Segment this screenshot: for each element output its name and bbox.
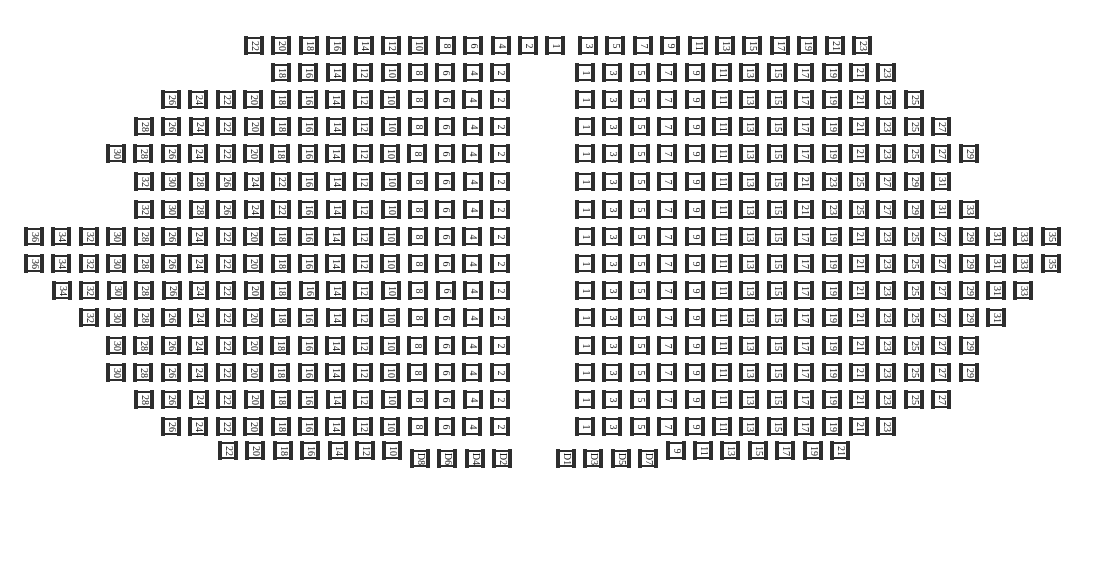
seat[interactable]: 30 — [106, 254, 126, 273]
seat[interactable]: 31 — [986, 227, 1006, 246]
seat[interactable]: 2 — [490, 336, 510, 355]
seat[interactable]: 8 — [436, 36, 456, 55]
seat[interactable]: 27 — [931, 363, 951, 382]
seat[interactable]: 2 — [490, 417, 510, 436]
seat[interactable]: 1 — [575, 336, 595, 355]
seat[interactable]: 10 — [380, 417, 400, 436]
seat[interactable]: 16 — [298, 144, 318, 163]
seat[interactable]: 16 — [298, 336, 318, 355]
seat[interactable]: 11 — [712, 336, 732, 355]
seat[interactable]: 20 — [243, 308, 263, 327]
seat[interactable]: 4 — [463, 281, 483, 300]
seat[interactable]: 11 — [712, 254, 732, 273]
seat[interactable]: 29 — [959, 308, 979, 327]
seat[interactable]: 23 — [876, 90, 896, 109]
seat[interactable]: 26 — [162, 281, 182, 300]
seat[interactable]: 14 — [354, 36, 374, 55]
seat[interactable]: 1 — [575, 63, 595, 82]
seat[interactable]: 28 — [133, 363, 153, 382]
seat[interactable]: 31 — [931, 172, 951, 191]
seat[interactable]: 25 — [849, 172, 869, 191]
seat[interactable]: 13 — [715, 36, 735, 55]
seat[interactable]: 25 — [904, 227, 924, 246]
seat[interactable]: 13 — [739, 117, 759, 136]
seat[interactable]: 24 — [189, 281, 209, 300]
seat[interactable]: 24 — [189, 390, 209, 409]
seat[interactable]: 21 — [794, 200, 814, 219]
seat[interactable]: 11 — [712, 200, 732, 219]
seat[interactable]: 5 — [630, 417, 650, 436]
seat[interactable]: 6 — [435, 336, 455, 355]
seat[interactable]: 25 — [904, 281, 924, 300]
seat[interactable]: 8 — [408, 90, 428, 109]
seat[interactable]: 3 — [602, 308, 622, 327]
seat[interactable]: 8 — [407, 336, 427, 355]
seat[interactable]: 7 — [657, 308, 677, 327]
seat[interactable]: 29 — [904, 172, 924, 191]
seat[interactable]: 23 — [876, 117, 896, 136]
seat[interactable]: 1 — [575, 308, 595, 327]
seat[interactable]: 35 — [1041, 227, 1061, 246]
seat[interactable]: 8 — [408, 172, 428, 191]
seat[interactable]: 27 — [931, 336, 951, 355]
seat[interactable]: 26 — [161, 417, 181, 436]
seat[interactable]: 27 — [931, 227, 951, 246]
seat[interactable]: 6 — [435, 363, 455, 382]
seat[interactable]: 16 — [298, 117, 318, 136]
seat[interactable]: 4 — [463, 63, 483, 82]
seat[interactable]: 1 — [575, 417, 595, 436]
wheelchair-seat[interactable]: D2 — [492, 449, 512, 468]
seat[interactable]: 2 — [490, 308, 510, 327]
seat[interactable]: 30 — [161, 200, 181, 219]
seat[interactable]: 17 — [794, 336, 814, 355]
seat[interactable]: 1 — [575, 200, 595, 219]
seat[interactable]: 6 — [435, 417, 455, 436]
seat[interactable]: 19 — [797, 36, 817, 55]
seat[interactable]: 21 — [849, 227, 869, 246]
seat[interactable]: 20 — [244, 390, 264, 409]
seat[interactable]: 22 — [244, 36, 264, 55]
seat[interactable]: 24 — [188, 144, 208, 163]
seat[interactable]: 18 — [273, 441, 293, 460]
seat[interactable]: 25 — [904, 308, 924, 327]
seat[interactable]: 31 — [986, 281, 1006, 300]
seat[interactable]: 15 — [767, 254, 787, 273]
seat[interactable]: 6 — [435, 308, 455, 327]
seat[interactable]: 24 — [188, 417, 208, 436]
seat[interactable]: 28 — [134, 227, 154, 246]
seat[interactable]: 29 — [904, 200, 924, 219]
seat[interactable]: 4 — [462, 254, 482, 273]
seat[interactable]: 26 — [161, 254, 181, 273]
seat[interactable]: 5 — [630, 336, 650, 355]
seat[interactable]: 19 — [822, 308, 842, 327]
seat[interactable]: 19 — [822, 90, 842, 109]
seat[interactable]: 25 — [904, 363, 924, 382]
seat[interactable]: 28 — [134, 308, 154, 327]
seat[interactable]: 10 — [381, 172, 401, 191]
seat[interactable]: 7 — [657, 227, 677, 246]
seat[interactable]: 18 — [271, 390, 291, 409]
seat[interactable]: 14 — [325, 417, 345, 436]
seat[interactable]: 21 — [849, 363, 869, 382]
seat[interactable]: 10 — [380, 336, 400, 355]
seat[interactable]: 9 — [685, 117, 705, 136]
seat[interactable]: 17 — [794, 227, 814, 246]
seat[interactable]: 3 — [602, 200, 622, 219]
seat[interactable]: 12 — [353, 117, 373, 136]
seat[interactable]: 9 — [685, 144, 705, 163]
seat[interactable]: 5 — [630, 390, 650, 409]
seat[interactable]: 15 — [767, 117, 787, 136]
seat[interactable]: 29 — [959, 281, 979, 300]
seat[interactable]: 9 — [685, 363, 705, 382]
seat[interactable]: 31 — [986, 308, 1006, 327]
seat[interactable]: 4 — [463, 172, 483, 191]
seat[interactable]: 5 — [630, 363, 650, 382]
seat[interactable]: 1 — [575, 144, 595, 163]
seat[interactable]: 26 — [161, 363, 181, 382]
seat[interactable]: 19 — [822, 417, 842, 436]
seat[interactable]: 30 — [106, 363, 126, 382]
seat[interactable]: 3 — [602, 227, 622, 246]
seat[interactable]: 22 — [216, 117, 236, 136]
seat[interactable]: 21 — [849, 144, 869, 163]
seat[interactable]: 11 — [712, 90, 732, 109]
seat[interactable]: 12 — [353, 144, 373, 163]
seat[interactable]: 15 — [767, 336, 787, 355]
seat[interactable]: 20 — [244, 117, 264, 136]
seat[interactable]: 22 — [271, 172, 291, 191]
seat[interactable]: 13 — [739, 417, 759, 436]
seat[interactable]: 3 — [602, 254, 622, 273]
seat[interactable]: 28 — [189, 200, 209, 219]
seat[interactable]: 23 — [822, 200, 842, 219]
seat[interactable]: 16 — [298, 172, 318, 191]
seat[interactable]: 20 — [243, 227, 263, 246]
seat[interactable]: 1 — [575, 90, 595, 109]
seat[interactable]: 16 — [299, 281, 319, 300]
seat[interactable]: 14 — [325, 336, 345, 355]
seat[interactable]: 17 — [794, 281, 814, 300]
seat[interactable]: 21 — [849, 308, 869, 327]
seat[interactable]: 7 — [657, 90, 677, 109]
seat[interactable]: 22 — [216, 281, 236, 300]
seat[interactable]: 5 — [630, 144, 650, 163]
seat[interactable]: 19 — [822, 281, 842, 300]
seat[interactable]: 19 — [822, 336, 842, 355]
seat[interactable]: 21 — [849, 281, 869, 300]
seat[interactable]: 9 — [685, 90, 705, 109]
seat[interactable]: 10 — [380, 363, 400, 382]
seat[interactable]: 11 — [712, 363, 732, 382]
seat[interactable]: 19 — [822, 227, 842, 246]
seat[interactable]: 28 — [133, 336, 153, 355]
seat[interactable]: 23 — [822, 172, 842, 191]
seat[interactable]: 14 — [326, 172, 346, 191]
seat[interactable]: 26 — [161, 390, 181, 409]
seat[interactable]: 10 — [381, 63, 401, 82]
seat[interactable]: 4 — [462, 90, 482, 109]
seat[interactable]: 5 — [630, 63, 650, 82]
seat[interactable]: 22 — [216, 336, 236, 355]
seat[interactable]: 13 — [739, 281, 759, 300]
seat[interactable]: 12 — [353, 308, 373, 327]
seat[interactable]: 16 — [298, 363, 318, 382]
seat[interactable]: 26 — [161, 227, 181, 246]
seat[interactable]: 3 — [602, 172, 622, 191]
seat[interactable]: 23 — [876, 363, 896, 382]
seat[interactable]: 12 — [353, 227, 373, 246]
seat[interactable]: 18 — [271, 227, 291, 246]
seat[interactable]: 5 — [630, 308, 650, 327]
seat[interactable]: 32 — [79, 227, 99, 246]
seat[interactable]: 29 — [959, 363, 979, 382]
seat[interactable]: 24 — [189, 308, 209, 327]
seat[interactable]: 13 — [739, 336, 759, 355]
seat[interactable]: 9 — [685, 336, 705, 355]
seat[interactable]: 31 — [931, 200, 951, 219]
seat[interactable]: 23 — [876, 390, 896, 409]
seat[interactable]: 22 — [216, 90, 236, 109]
seat[interactable]: 9 — [685, 417, 705, 436]
seat[interactable]: 15 — [767, 390, 787, 409]
seat[interactable]: 22 — [271, 200, 291, 219]
seat[interactable]: 9 — [685, 390, 705, 409]
seat[interactable]: 4 — [462, 144, 482, 163]
seat[interactable]: 6 — [435, 227, 455, 246]
seat[interactable]: 6 — [435, 63, 455, 82]
seat[interactable]: 20 — [243, 90, 263, 109]
seat[interactable]: 4 — [463, 200, 483, 219]
seat[interactable]: 12 — [353, 172, 373, 191]
seat[interactable]: 1 — [575, 254, 595, 273]
seat[interactable]: 10 — [380, 227, 400, 246]
seat[interactable]: 32 — [134, 172, 154, 191]
seat[interactable]: 26 — [161, 336, 181, 355]
seat[interactable]: 6 — [435, 200, 455, 219]
seat[interactable]: 11 — [712, 117, 732, 136]
wheelchair-seat[interactable]: D8 — [410, 449, 430, 468]
seat[interactable]: 25 — [904, 117, 924, 136]
seat[interactable]: 27 — [931, 281, 951, 300]
seat[interactable]: 13 — [739, 200, 759, 219]
seat[interactable]: 12 — [353, 363, 373, 382]
seat[interactable]: 16 — [298, 254, 318, 273]
seat[interactable]: 10 — [381, 281, 401, 300]
seat[interactable]: 16 — [298, 200, 318, 219]
seat[interactable]: 10 — [381, 200, 401, 219]
seat[interactable]: 17 — [770, 36, 790, 55]
seat[interactable]: 14 — [326, 308, 346, 327]
seat[interactable]: 2 — [490, 200, 510, 219]
seat[interactable]: 22 — [218, 441, 238, 460]
seat[interactable]: 16 — [298, 90, 318, 109]
seat[interactable]: 20 — [243, 336, 263, 355]
seat[interactable]: 8 — [408, 254, 428, 273]
seat[interactable]: 2 — [490, 390, 510, 409]
seat[interactable]: 3 — [602, 117, 622, 136]
seat[interactable]: 30 — [107, 281, 127, 300]
seat[interactable]: 6 — [435, 117, 455, 136]
seat[interactable]: 12 — [353, 390, 373, 409]
seat[interactable]: 8 — [408, 63, 428, 82]
seat[interactable]: 7 — [657, 117, 677, 136]
seat[interactable]: 17 — [794, 117, 814, 136]
seat[interactable]: 7 — [657, 336, 677, 355]
seat[interactable]: 14 — [326, 200, 346, 219]
seat[interactable]: 19 — [822, 363, 842, 382]
seat[interactable]: 7 — [657, 281, 677, 300]
seat[interactable]: 15 — [767, 63, 787, 82]
seat[interactable]: 23 — [876, 254, 896, 273]
seat[interactable]: 6 — [436, 281, 456, 300]
seat[interactable]: 19 — [822, 390, 842, 409]
seat[interactable]: 15 — [767, 281, 787, 300]
seat[interactable]: 30 — [106, 308, 126, 327]
seat[interactable]: 27 — [931, 308, 951, 327]
seat[interactable]: 11 — [712, 308, 732, 327]
wheelchair-seat[interactable]: D6 — [437, 449, 457, 468]
seat[interactable]: 24 — [189, 117, 209, 136]
seat[interactable]: 5 — [630, 281, 650, 300]
seat[interactable]: 16 — [298, 417, 318, 436]
seat[interactable]: 18 — [271, 254, 291, 273]
seat[interactable]: 31 — [986, 254, 1006, 273]
seat[interactable]: 13 — [739, 254, 759, 273]
seat[interactable]: 1 — [575, 390, 595, 409]
seat[interactable]: 28 — [134, 281, 154, 300]
seat[interactable]: 9 — [685, 172, 705, 191]
seat[interactable]: 9 — [685, 63, 705, 82]
seat[interactable]: 4 — [462, 227, 482, 246]
seat[interactable]: 13 — [739, 63, 759, 82]
seat[interactable]: 9 — [666, 441, 686, 460]
seat[interactable]: 19 — [803, 441, 823, 460]
seat[interactable]: 8 — [408, 227, 428, 246]
seat[interactable]: 3 — [602, 390, 622, 409]
seat[interactable]: 13 — [739, 172, 759, 191]
seat[interactable]: 3 — [602, 63, 622, 82]
seat[interactable]: 20 — [243, 144, 263, 163]
seat[interactable]: 14 — [326, 63, 346, 82]
seat[interactable]: 10 — [382, 441, 402, 460]
seat[interactable]: 25 — [904, 90, 924, 109]
seat[interactable]: 19 — [822, 144, 842, 163]
seat[interactable]: 22 — [216, 254, 236, 273]
seat[interactable]: 19 — [822, 254, 842, 273]
seat[interactable]: 6 — [435, 254, 455, 273]
seat[interactable]: 29 — [959, 336, 979, 355]
seat[interactable]: 5 — [630, 227, 650, 246]
seat[interactable]: 11 — [712, 63, 732, 82]
seat[interactable]: 17 — [794, 363, 814, 382]
seat[interactable]: 7 — [657, 363, 677, 382]
seat[interactable]: 14 — [328, 441, 348, 460]
seat[interactable]: 21 — [830, 441, 850, 460]
wheelchair-seat[interactable]: D7 — [638, 449, 658, 468]
seat[interactable]: 13 — [739, 363, 759, 382]
seat[interactable]: 3 — [602, 363, 622, 382]
seat[interactable]: 4 — [463, 308, 483, 327]
seat[interactable]: 33 — [1013, 281, 1033, 300]
seat[interactable]: 18 — [270, 363, 290, 382]
seat[interactable]: 5 — [630, 90, 650, 109]
seat[interactable]: 26 — [161, 117, 181, 136]
seat[interactable]: 21 — [849, 254, 869, 273]
seat[interactable]: 24 — [188, 90, 208, 109]
seat[interactable]: 22 — [216, 227, 236, 246]
seat[interactable]: 5 — [630, 200, 650, 219]
seat[interactable]: 18 — [271, 308, 291, 327]
seat[interactable]: 3 — [602, 336, 622, 355]
seat[interactable]: 22 — [216, 308, 236, 327]
seat[interactable]: 11 — [712, 281, 732, 300]
seat[interactable]: 15 — [767, 417, 787, 436]
seat[interactable]: 21 — [825, 36, 845, 55]
seat[interactable]: 4 — [491, 36, 511, 55]
seat[interactable]: 19 — [822, 63, 842, 82]
seat[interactable]: 16 — [300, 441, 320, 460]
seat[interactable]: 14 — [325, 227, 345, 246]
seat[interactable]: 26 — [161, 308, 181, 327]
seat[interactable]: 12 — [381, 36, 401, 55]
seat[interactable]: 12 — [353, 90, 373, 109]
seat[interactable]: 21 — [849, 63, 869, 82]
seat[interactable]: 13 — [739, 144, 759, 163]
seat[interactable]: 7 — [657, 390, 677, 409]
seat[interactable]: 11 — [712, 390, 732, 409]
seat[interactable]: 20 — [245, 441, 265, 460]
seat[interactable]: 22 — [216, 390, 236, 409]
seat[interactable]: 2 — [490, 144, 510, 163]
seat[interactable]: 8 — [407, 363, 427, 382]
seat[interactable]: 15 — [767, 363, 787, 382]
seat[interactable]: 28 — [189, 172, 209, 191]
seat[interactable]: 2 — [518, 36, 538, 55]
seat[interactable]: 1 — [575, 363, 595, 382]
seat[interactable]: 33 — [1013, 227, 1033, 246]
seat[interactable]: 8 — [408, 117, 428, 136]
seat[interactable]: 7 — [633, 36, 653, 55]
seat[interactable]: 15 — [767, 227, 787, 246]
seat[interactable]: 18 — [270, 336, 290, 355]
seat[interactable]: 6 — [435, 390, 455, 409]
seat[interactable]: 17 — [794, 254, 814, 273]
seat[interactable]: 4 — [463, 117, 483, 136]
seat[interactable]: 4 — [463, 390, 483, 409]
seat[interactable]: 21 — [849, 417, 869, 436]
seat[interactable]: 24 — [188, 336, 208, 355]
seat[interactable]: 24 — [188, 227, 208, 246]
seat[interactable]: 17 — [794, 90, 814, 109]
seat[interactable]: 12 — [353, 63, 373, 82]
seat[interactable]: 17 — [794, 390, 814, 409]
seat[interactable]: 8 — [408, 417, 428, 436]
seat[interactable]: 5 — [630, 254, 650, 273]
seat[interactable]: 35 — [1041, 254, 1061, 273]
seat[interactable]: 27 — [931, 390, 951, 409]
seat[interactable]: 9 — [685, 308, 705, 327]
seat[interactable]: 13 — [739, 227, 759, 246]
seat[interactable]: 18 — [299, 36, 319, 55]
seat[interactable]: 30 — [161, 172, 181, 191]
seat[interactable]: 24 — [188, 254, 208, 273]
seat[interactable]: 6 — [463, 36, 483, 55]
seat[interactable]: 16 — [298, 227, 318, 246]
seat[interactable]: 12 — [353, 200, 373, 219]
